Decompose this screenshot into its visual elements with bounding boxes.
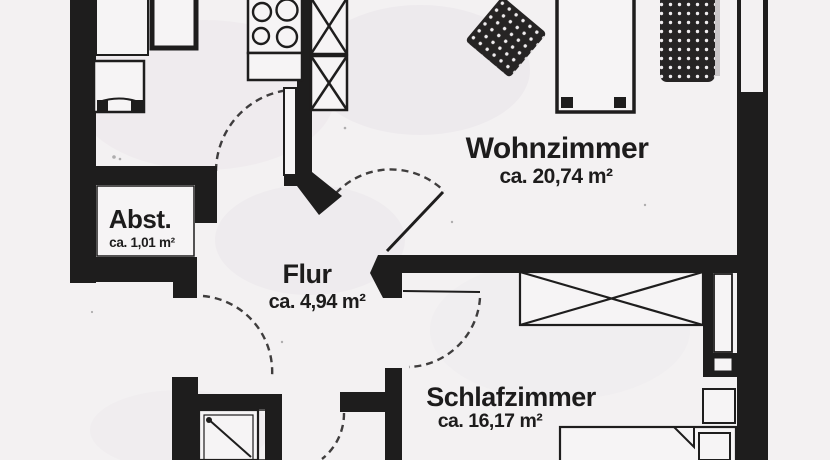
table-foot [614,97,626,108]
counter-icon [96,0,148,55]
nightstand-icon [703,389,735,423]
speckle [344,127,347,130]
room-label-abst: Abst. [109,204,172,234]
window-glass [741,0,763,92]
room-area-flur: ca. 4,94 m² [269,291,367,313]
sofa-edge [715,0,720,76]
floorplan-svg: Wohnzimmer ca. 20,74 m² Flur ca. 4,94 m²… [0,0,830,460]
tall-cabinet-x-icon [311,56,347,110]
wall-abst-right-stub [195,185,217,223]
speckle [451,221,453,223]
wall-left-outer [70,0,96,283]
room-area-schlafzimmer: ca. 16,17 m² [438,410,544,432]
table-icon [557,0,634,112]
wall-stub-bath-door [340,392,386,412]
niche-slot [714,358,732,371]
shower-icon [199,410,266,460]
speckle [119,158,122,161]
room-label-schlafzimmer: Schlafzimmer [426,382,597,412]
wall-kitchen-bottom [70,166,217,185]
counter-icon [248,53,302,80]
window-frame-right [763,0,768,96]
floorplan-scan: Wohnzimmer ca. 20,74 m² Flur ca. 4,94 m²… [0,0,830,460]
sofa-icon [660,0,720,82]
wall-bath-top [197,394,282,409]
wardrobe-x-icon [520,272,703,325]
wall-niche-strip [703,272,713,364]
room-area-wohnzimmer: ca. 20,74 m² [499,165,613,188]
room-label-wohnzimmer: Wohnzimmer [466,132,650,165]
speckle [91,311,93,313]
window-frame-left [737,0,741,96]
door-leaf-kitchen [284,88,296,175]
wall-bath-left [172,377,198,460]
speckle [281,341,283,343]
room-label-flur: Flur [283,259,333,289]
wall-wohnzimmer-schlafzimmer [378,255,740,273]
tall-cabinet-x-icon [311,0,347,54]
room-area-abst: ca. 1,01 m² [109,235,176,250]
window-symbol [737,0,768,98]
door-leaf-schlafzimmer [403,291,480,292]
table-foot [561,97,573,108]
wall-schlafzimmer-left [385,368,402,460]
speckle [644,204,646,206]
window-sill [737,92,768,98]
sink-icon [152,0,196,48]
speckle [112,155,116,159]
wall-bath-right [265,409,282,460]
sofa-texture [660,0,715,82]
wall-right-outer [737,90,768,460]
pillow-icon [699,433,730,460]
radiator-icon [714,274,732,352]
wall-abst-step [173,257,197,298]
